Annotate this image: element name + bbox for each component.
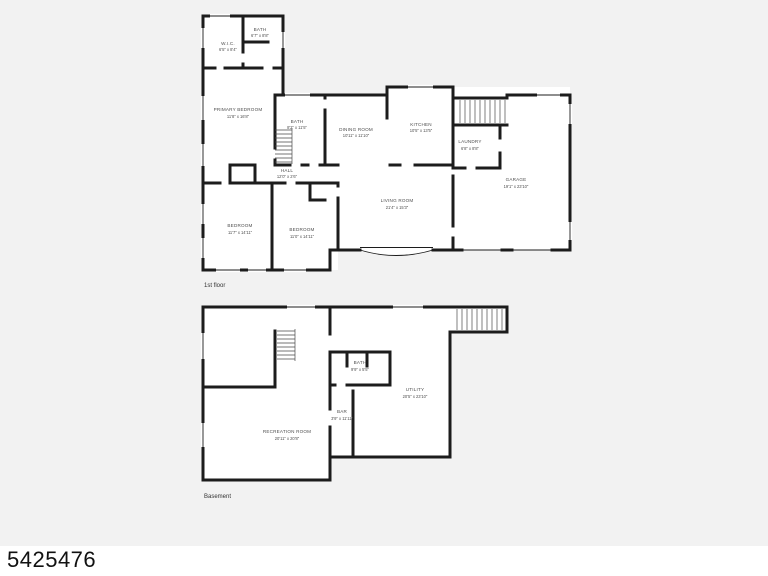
room-dims-utility: 20'5" x 23'10" bbox=[403, 394, 428, 399]
room-label-bar: BAR bbox=[337, 409, 348, 414]
room-label-bedroom-right: BEDROOM bbox=[289, 227, 314, 232]
room-label-living-room: LIVING ROOM bbox=[381, 198, 414, 203]
room-dims-wic: 6'5" x 8'4" bbox=[219, 47, 237, 52]
first-floor-plan: W.I.C. 6'5" x 8'4" BATH 6'7" x 8'8" PRIM… bbox=[190, 8, 580, 293]
room-dims-hall: 12'0" x 2'6" bbox=[277, 174, 298, 179]
room-label-garage: GARAGE bbox=[506, 177, 527, 182]
room-label-dining-room: DINING ROOM bbox=[339, 127, 373, 132]
room-dims-recreation-room: 20'11" x 20'8" bbox=[275, 436, 300, 441]
room-label-primary-bedroom: PRIMARY BEDROOM bbox=[214, 107, 263, 112]
room-label-hall: HALL bbox=[281, 168, 294, 173]
room-label-bath-basement: BATH bbox=[354, 360, 367, 365]
mls-footer: 5425476 bbox=[0, 546, 768, 576]
room-dims-bath-top: 6'7" x 8'8" bbox=[251, 33, 269, 38]
room-label-utility: UTILITY bbox=[406, 387, 425, 392]
room-dims-bath-basement: 9'9" x 5'5" bbox=[351, 367, 369, 372]
floor-label-basement: Basement bbox=[204, 494, 231, 500]
basement-room-fills-shape bbox=[203, 307, 330, 480]
room-dims-bedroom-right: 11'0" x 14'11" bbox=[290, 234, 315, 239]
mls-number: 5425476 bbox=[7, 547, 96, 573]
room-dims-dining-room: 10'11" x 11'10" bbox=[343, 133, 370, 138]
first-floor-room-fills bbox=[203, 16, 570, 270]
room-label-bath-top: BATH bbox=[254, 27, 267, 32]
basement-plan: BATH 9'9" x 5'5" UTILITY 20'5" x 23'10" … bbox=[195, 303, 515, 488]
floor-label-first: 1st floor bbox=[204, 283, 225, 289]
room-label-laundry: LAUNDRY bbox=[458, 139, 481, 144]
room-label-recreation-room: RECREATION ROOM bbox=[263, 429, 311, 434]
room-dims-kitchen: 10'5" x 13'5" bbox=[410, 128, 433, 133]
first-floor-room-fills-shape bbox=[453, 87, 570, 250]
room-dims-garage: 19'1" x 23'10" bbox=[504, 184, 529, 189]
room-dims-bar: 3'9" x 11'11" bbox=[331, 416, 353, 421]
room-label-bedroom-left: BEDROOM bbox=[227, 223, 252, 228]
room-dims-bath-hall: 8'2" x 11'5" bbox=[287, 125, 307, 130]
bay-window-fill bbox=[360, 247, 433, 256]
room-label-wic: W.I.C. bbox=[221, 41, 235, 46]
room-dims-bedroom-left: 11'7" x 14'11" bbox=[228, 230, 253, 235]
room-label-bath-hall: BATH bbox=[291, 119, 304, 124]
first-floor-room-fills-shape bbox=[387, 87, 453, 107]
room-dims-laundry: 6'8" x 8'8" bbox=[461, 146, 479, 151]
room-dims-primary-bedroom: 11'8" x 16'8" bbox=[227, 114, 250, 119]
room-label-kitchen: KITCHEN bbox=[410, 122, 432, 127]
room-dims-living-room: 21'4" x 15'3" bbox=[386, 205, 409, 210]
basement-room-fills-shape bbox=[450, 307, 507, 332]
